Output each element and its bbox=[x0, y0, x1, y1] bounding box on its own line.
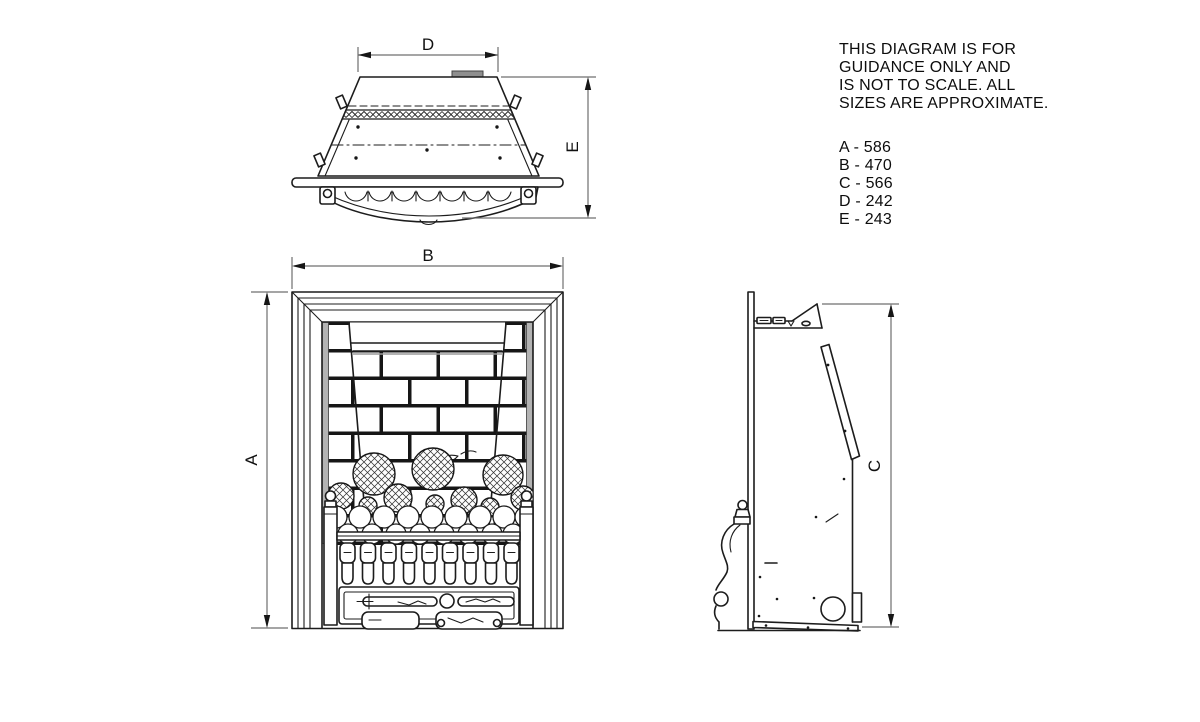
dimension-c: C bbox=[822, 304, 899, 627]
top-shelf bbox=[292, 178, 563, 187]
dimension-a: A bbox=[242, 292, 288, 628]
side-body bbox=[718, 292, 862, 631]
dimension-item-d: D - 242 bbox=[839, 193, 893, 211]
dimension-item-b: B - 470 bbox=[839, 157, 893, 175]
note-line: SIZES ARE APPROXIMATE. bbox=[839, 95, 1049, 113]
top-view: D E bbox=[292, 35, 596, 225]
ashpan-cover bbox=[339, 587, 519, 629]
dimension-b: B bbox=[292, 246, 563, 289]
firebox bbox=[323, 322, 536, 545]
dim-label-e: E bbox=[563, 141, 582, 152]
dimension-item-c: C - 566 bbox=[839, 175, 893, 193]
dim-label-a: A bbox=[242, 454, 261, 466]
dim-label-b: B bbox=[422, 246, 433, 265]
side-view: C bbox=[714, 292, 899, 631]
dimension-d: D bbox=[358, 35, 498, 72]
note-text: THIS DIAGRAM IS FOR GUIDANCE ONLY AND IS… bbox=[839, 41, 1049, 113]
note-line: IS NOT TO SCALE. ALL bbox=[839, 77, 1049, 95]
front-view: A B bbox=[242, 246, 563, 629]
note-line: THIS DIAGRAM IS FOR bbox=[839, 41, 1049, 59]
dim-label-d: D bbox=[422, 35, 434, 54]
dimension-item-a: A - 586 bbox=[839, 139, 893, 157]
dim-label-c: C bbox=[865, 460, 884, 472]
dimension-list: A - 586 B - 470 C - 566 D - 242 E - 243 bbox=[839, 139, 893, 229]
fret-top-view bbox=[320, 187, 538, 225]
diagram-page: D E bbox=[0, 0, 1200, 722]
note-line: GUIDANCE ONLY AND bbox=[839, 59, 1049, 77]
dimension-item-e: E - 243 bbox=[839, 211, 893, 229]
canopy bbox=[314, 71, 543, 176]
side-fret-profile bbox=[714, 501, 750, 630]
